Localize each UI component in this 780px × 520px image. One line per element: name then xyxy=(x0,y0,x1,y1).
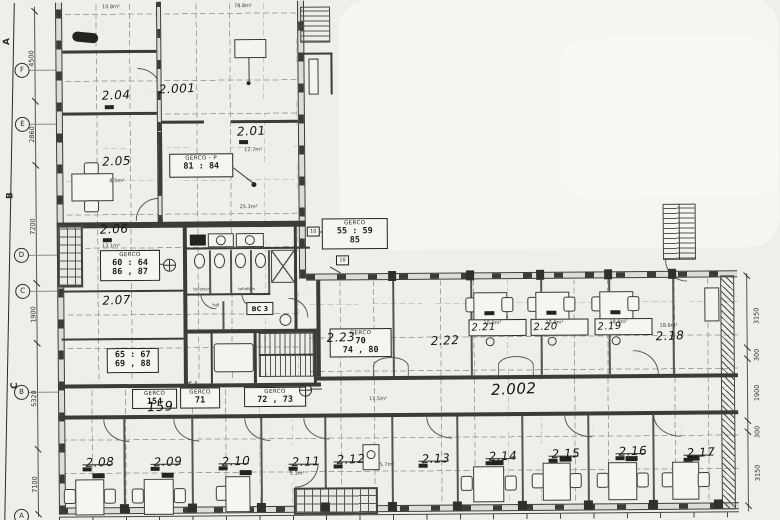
pier xyxy=(466,270,474,280)
pier xyxy=(536,270,544,280)
label-smudge xyxy=(549,459,558,463)
label-smudge xyxy=(334,464,343,468)
pier xyxy=(321,502,330,511)
area-tag-smudge xyxy=(610,310,620,314)
area-label: 5.1m² xyxy=(290,471,305,477)
grid-letter: B xyxy=(19,388,24,396)
chair-icon xyxy=(627,296,639,311)
room-label: 2.12 xyxy=(336,448,365,467)
door-arc xyxy=(373,357,409,376)
room-number: 2.01 xyxy=(237,123,266,138)
pier xyxy=(388,502,397,511)
bc3-tag: BC 3 xyxy=(246,302,273,315)
wall xyxy=(162,120,204,123)
table xyxy=(672,462,699,500)
dim-value: 4500 xyxy=(27,50,35,67)
wall xyxy=(158,132,163,196)
grid-letter: F xyxy=(20,66,24,74)
room-number: 2.22 xyxy=(430,333,459,348)
room-label: 2.15 xyxy=(551,443,580,462)
floor-plan: 18.0m² 2.21 18.0m² 2.20 18.0m² 2.19 GERC… xyxy=(0,0,780,520)
bubble-leader xyxy=(28,291,57,292)
area-tag-smudge xyxy=(240,470,252,475)
bubble-leader xyxy=(27,255,57,256)
wall xyxy=(254,331,257,383)
wall-tag-text: 10 xyxy=(308,228,319,237)
desk xyxy=(64,479,116,513)
chair-icon xyxy=(461,476,473,491)
chair-icon xyxy=(563,297,575,312)
room-number: 2.18 xyxy=(655,328,684,343)
section-letter: B xyxy=(5,192,15,199)
grid-bubble: D xyxy=(14,248,29,263)
grid-bubble: C xyxy=(15,284,30,299)
pier xyxy=(257,503,266,512)
room-number: 2.23 xyxy=(326,330,355,345)
room-label: 2.16 xyxy=(618,440,647,459)
stool-icon xyxy=(486,337,495,346)
table xyxy=(473,466,504,502)
section-letter: A xyxy=(2,38,12,45)
label-smudge xyxy=(103,238,112,242)
pier xyxy=(668,269,676,279)
fixture-knob xyxy=(366,450,375,459)
bubble-leader xyxy=(28,124,56,125)
dim-value: 300 xyxy=(753,426,761,438)
stall-divider xyxy=(230,250,232,293)
wall-tag-text: 10 xyxy=(337,256,348,265)
chair-icon xyxy=(570,473,582,488)
room-number: 2.001 xyxy=(158,81,195,97)
sink-icon xyxy=(216,235,226,245)
chair-icon xyxy=(132,488,144,503)
label-underline xyxy=(684,454,714,455)
grid-bubble: A xyxy=(14,509,29,520)
cabinet xyxy=(234,39,266,58)
partition xyxy=(222,301,224,329)
chair-icon xyxy=(501,297,513,312)
area-label: 10.8m² xyxy=(102,4,120,10)
dim-value: 1900 xyxy=(29,306,37,323)
wc-icon xyxy=(235,253,246,268)
pier xyxy=(388,271,396,281)
gerco-box-60-64: GERCO 60 : 64 86 , 87 xyxy=(100,250,160,281)
dim-value: 3150 xyxy=(752,308,760,325)
dim-value: 5320 xyxy=(30,390,38,407)
room-label: 2.17 xyxy=(686,441,715,460)
leader-line xyxy=(248,57,249,81)
dim-value: 7200 xyxy=(29,218,37,235)
survey-point-icon xyxy=(163,259,176,272)
desk xyxy=(132,479,186,513)
desk xyxy=(597,462,649,498)
room-label: 2.14 xyxy=(488,445,517,464)
dimension-line-left xyxy=(34,7,39,517)
chair-icon xyxy=(174,488,186,503)
room-label: 2.10 xyxy=(221,450,250,469)
desk xyxy=(532,463,582,499)
pier xyxy=(120,504,129,513)
gerco-box-72-73: GERCO 72 , 73 xyxy=(244,387,306,407)
toilet-label: toiletten xyxy=(238,286,255,291)
chair-icon xyxy=(64,489,76,504)
pier xyxy=(649,500,658,509)
room-number: 2.04 xyxy=(101,88,130,103)
room-number: 2.20 xyxy=(533,321,558,333)
table xyxy=(71,173,113,201)
wall xyxy=(300,52,332,54)
wc-icon xyxy=(214,253,225,268)
area-tag-smudge xyxy=(92,473,104,478)
area-label: 13.1m² xyxy=(102,243,120,249)
bc1-tag: BC 1 xyxy=(184,382,198,388)
room-number: 2.05 xyxy=(102,154,131,169)
area-tag-smudge xyxy=(161,473,173,478)
grid-bubble: F xyxy=(14,63,29,78)
scan-light-patch xyxy=(558,37,779,199)
stall-divider xyxy=(268,250,270,293)
chair-icon xyxy=(104,489,116,504)
dim-value: 1900 xyxy=(753,385,761,402)
chair-icon xyxy=(505,476,517,491)
label-smudge xyxy=(684,458,693,462)
wall xyxy=(330,52,332,94)
wall xyxy=(316,281,321,377)
gerco-numbers: 69 , 88 xyxy=(108,360,158,369)
desk xyxy=(662,461,710,497)
sink-icon xyxy=(245,235,255,245)
gerco-numbers: 72 , 73 xyxy=(245,396,305,405)
pier xyxy=(604,269,612,279)
door-arc xyxy=(498,356,534,375)
area-label: 5.7m² xyxy=(380,462,395,468)
wall-tag-10: 10 xyxy=(336,255,349,265)
pier xyxy=(188,504,197,513)
room-label: 2.08 xyxy=(85,451,114,470)
room-label: 2.13 xyxy=(421,448,450,467)
label-smudge xyxy=(105,105,114,109)
duct xyxy=(308,59,318,95)
area-label: 78.8m² xyxy=(234,3,252,9)
radiator xyxy=(704,287,719,321)
pier xyxy=(584,500,593,509)
area-label: 8.5m² xyxy=(109,178,124,184)
gerco-numbers: 81 : 84 xyxy=(170,162,232,171)
label-smudge xyxy=(239,140,248,144)
desk xyxy=(216,476,260,510)
scan-sheet: 18.0m² 2.21 18.0m² 2.20 18.0m² 2.19 GERC… xyxy=(0,0,780,520)
area-tag-smudge xyxy=(484,311,494,315)
grid-letter: D xyxy=(19,251,24,259)
label-smudge xyxy=(419,464,428,468)
chair-icon xyxy=(84,200,99,212)
desk xyxy=(71,162,111,212)
gerco-handwritten: 159 xyxy=(147,399,174,415)
grid-bubble: B xyxy=(14,385,29,400)
room-label: 2.09 xyxy=(153,451,182,470)
dim-value: 300 xyxy=(753,349,761,361)
room-number: 2.07 xyxy=(102,293,131,308)
gerco-numbers: 74 , 80 xyxy=(331,346,391,355)
label-smudge xyxy=(83,467,92,471)
grid-letter: A xyxy=(19,512,24,520)
wall-hatched-right xyxy=(720,275,736,509)
table xyxy=(225,476,250,512)
area-label: 25.3m² xyxy=(240,204,258,210)
label-smudge xyxy=(219,466,228,470)
pier xyxy=(453,501,462,510)
sink-icon xyxy=(279,314,291,326)
bc3-text: BC 3 xyxy=(247,303,272,315)
stool-icon xyxy=(612,336,621,345)
dim-value: 2860 xyxy=(28,126,36,143)
table xyxy=(543,463,571,501)
area-tag-smudge xyxy=(546,311,556,315)
grid-bubble: E xyxy=(15,117,30,132)
shaft-x xyxy=(271,250,295,283)
stool-icon xyxy=(548,337,557,346)
grid-letter: C xyxy=(20,287,25,295)
dim-value: 3150 xyxy=(754,465,762,482)
gerco-box-81-84: GERCO - P 81 : 84 xyxy=(169,153,233,178)
wall xyxy=(211,331,213,383)
wc-icon xyxy=(194,253,205,268)
desk xyxy=(461,466,517,500)
cistern-block xyxy=(190,234,206,245)
leader-line xyxy=(330,267,341,274)
label-smudge xyxy=(486,461,495,465)
pier xyxy=(714,499,723,508)
bubble-leader xyxy=(27,70,55,71)
room-number: 2.21 xyxy=(471,322,496,334)
stair-top xyxy=(300,6,330,42)
dimension-line-right xyxy=(746,273,749,511)
terrace-grid xyxy=(294,487,378,515)
section-line xyxy=(4,3,15,520)
pantry-counter xyxy=(214,343,254,372)
room-label: 2.11 xyxy=(291,451,320,470)
label-smudge xyxy=(616,456,625,460)
hall-label: hal xyxy=(212,303,219,308)
dot xyxy=(251,182,256,187)
dot xyxy=(247,81,251,85)
wall-tag-10: 10 xyxy=(307,227,320,237)
table xyxy=(608,462,637,500)
gerco-box-65-67: 65 : 67 69 , 88 xyxy=(107,348,159,373)
gerco-box-71: GERCO 71 xyxy=(180,387,220,408)
survey-point-icon xyxy=(299,384,312,397)
area-label: 11.5m² xyxy=(369,396,387,402)
dim-value: 7100 xyxy=(31,476,39,493)
gerco-numbers: 71 xyxy=(181,396,219,405)
area-label: 12.7m² xyxy=(244,147,262,153)
balcony-grid xyxy=(57,225,83,287)
toilet-label: toiletten xyxy=(193,286,210,291)
chair-icon xyxy=(698,472,710,487)
corridor-number: 2.002 xyxy=(491,379,537,399)
room-number: 2.19 xyxy=(597,321,622,333)
gerco-numbers: 86 , 87 xyxy=(101,268,159,277)
gerco-numbers: 85 xyxy=(323,236,387,246)
chair-icon xyxy=(637,472,649,487)
wc-icon xyxy=(255,253,266,268)
label-smudge xyxy=(289,467,298,471)
gerco-box-55-59: GERCO 55 : 59 85 xyxy=(322,218,388,250)
room-number: 2.06 xyxy=(99,222,128,237)
label-smudge xyxy=(151,467,160,471)
pier xyxy=(518,501,527,510)
chair-icon xyxy=(597,473,609,488)
grid-letter: E xyxy=(20,120,25,128)
table xyxy=(144,479,174,515)
table xyxy=(75,479,104,515)
